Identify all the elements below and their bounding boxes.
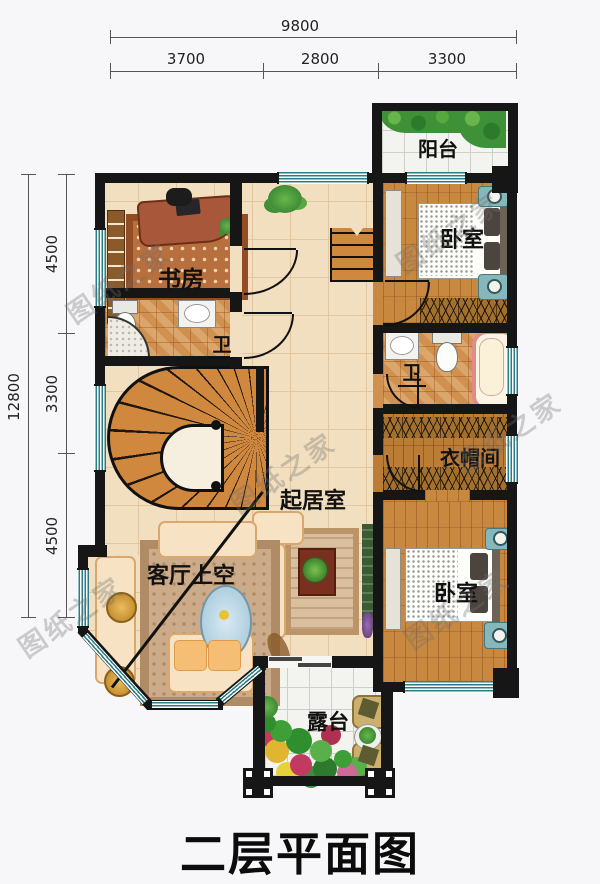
dim-total-height: 12800 [5,357,23,437]
living-void-label: 客厅上空 [136,558,246,590]
wall-corner [493,668,519,698]
balcony-left-wall [372,103,382,183]
door-opening [373,282,383,325]
bath-mid-label: 卫 [398,358,426,387]
column-notch [264,789,270,795]
dim-line [66,174,67,618]
dim-total-width: 9800 [270,17,330,35]
lamp-icon [492,628,507,643]
lamp-icon [487,279,502,294]
dresser [385,548,401,630]
lamp-icon [493,531,508,546]
door-opening [373,374,383,408]
stair-newel-post [211,420,221,430]
sliding-door-panel [269,657,302,661]
column-notch [246,771,252,777]
floor-plan: 9800 3700 2800 3300 12800 4500 3300 4500 [0,0,600,881]
dim-seg-2: 3300 [43,354,61,434]
toilet-bowl [436,342,458,372]
column-notch [368,789,374,795]
table-plant [359,727,376,744]
flower-decor [362,612,373,638]
dim-seg-3: 3300 [407,50,487,68]
hall-plant [268,185,302,213]
dim-line [110,71,517,72]
sliding-door-panel [298,663,331,667]
sofa-top [158,521,257,558]
bath-mid-wall [373,333,383,374]
closet-bedroom-opening [425,488,470,502]
dim-tick [110,63,111,79]
dim-seg-1: 3700 [146,50,226,68]
study-door-leaf [244,248,296,250]
dim-tick [110,30,111,44]
terrace-column [243,768,273,798]
wall-step [78,545,107,557]
dim-seg-1: 4500 [43,214,61,294]
wall-corner [492,166,518,193]
dim-tick [21,174,36,175]
stair-side-wall [256,366,264,432]
study-wall [230,183,242,248]
terrace-label: 露台 [296,706,360,736]
closet-wall [373,408,383,455]
window [94,384,106,472]
table-item [219,610,229,620]
dim-tick [378,63,379,79]
balcony-label: 阳台 [404,133,472,162]
window [405,172,467,184]
table-plant [303,558,327,582]
dim-tick [58,453,75,454]
dim-tick [263,63,264,79]
bath-top-door-leaf [244,312,292,314]
bay-window [152,701,218,708]
dim-seg-3: 4500 [43,496,61,576]
sink-basin [184,304,210,323]
dim-seg-2: 2800 [280,50,360,68]
balcony-top-wall [372,103,518,111]
seat-cushion [174,640,207,671]
hall-bedroom-wall [373,183,383,282]
nightstand [478,274,509,300]
window [277,172,369,184]
closet-door-leaf [418,455,420,490]
wardrobe [420,298,507,323]
dim-line [28,174,29,618]
bath-closet-wall [373,404,517,414]
sink-basin [390,336,414,355]
seat-cushion [208,640,241,671]
stair-newel-post [211,481,221,491]
column-notch [368,771,374,777]
column-notch [264,771,270,777]
column-notch [386,789,392,795]
dim-tick [58,174,75,175]
dim-tick [516,63,517,79]
bathtub-basin [479,338,504,396]
dim-tick [516,30,517,44]
dim-line [110,37,517,38]
straight-stair-flight [330,228,377,282]
stair-break-mark [348,224,366,236]
bedroom-top-door-leaf [385,280,429,282]
door-opening [373,455,383,492]
window [403,681,495,693]
desk-chair [166,188,192,206]
page-title: 二层平面图 [150,818,450,884]
column-notch [386,771,392,777]
terrace-column [365,768,395,798]
terrace-bottom-wall [262,776,374,786]
column-notch [246,789,252,795]
window [506,346,518,396]
dim-tick [58,333,75,334]
door-opening [230,246,242,292]
bath-top-label: 卫 [208,330,236,359]
